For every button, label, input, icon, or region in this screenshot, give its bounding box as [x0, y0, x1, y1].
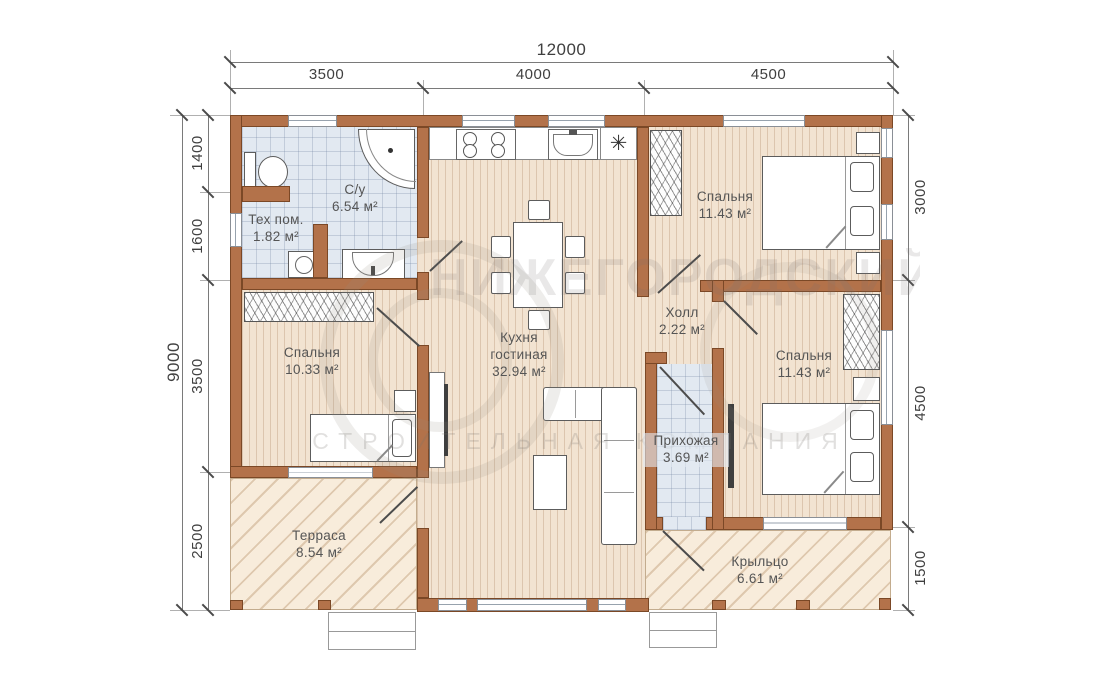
tv-cabinet-living	[429, 372, 445, 468]
coffee-table	[533, 455, 567, 510]
label-bedroom-right-area: 11.43 м²	[762, 365, 846, 382]
ext-right-bottom	[893, 610, 915, 611]
dim-top-seg-3500: 3500	[230, 66, 423, 83]
window-bedroom2-right	[881, 330, 893, 425]
wall-bath-kitchen	[417, 127, 429, 238]
label-su: С/у 6.54 м²	[310, 182, 400, 216]
wall-hallway-stub	[645, 352, 667, 364]
bath-sink-tap	[371, 266, 375, 275]
terrace-post-mid	[318, 600, 331, 610]
label-hall-name: Холл	[640, 305, 724, 322]
terrace-post-left	[230, 600, 243, 610]
dim-top-total: 12000	[230, 40, 893, 60]
label-su-name: С/у	[310, 182, 400, 199]
dim-right-seg-4500: 4500	[912, 373, 928, 433]
dim-line-top-segments	[230, 88, 893, 89]
label-kitchen-area: 32.94 м²	[473, 364, 565, 381]
bed-single-pillow	[392, 419, 412, 457]
label-bedroom-right: Спальня 11.43 м²	[762, 348, 846, 382]
kitchen-sink-tap	[569, 130, 577, 135]
kitchen-sink-basin	[553, 134, 593, 156]
label-hall-area: 2.22 м²	[640, 322, 724, 339]
dim-right-seg-1500: 1500	[912, 538, 928, 598]
bed-right-pillow-1	[850, 410, 874, 440]
nightstand-top-2	[856, 252, 880, 274]
label-bedroom-top: Спальня 11.43 м²	[683, 189, 767, 223]
window-bedroom2-bottom	[763, 517, 847, 530]
label-bedroom-top-area: 11.43 м²	[683, 206, 767, 223]
dim-top-seg-4000: 4000	[423, 66, 644, 83]
dim-left-seg-1400: 1400	[189, 123, 205, 183]
label-bedroom-left-name: Спальня	[268, 345, 356, 362]
label-kitchen-name: Кухня	[473, 330, 565, 347]
terrace-step-line	[329, 631, 415, 632]
window-bedroomleft-bottom	[288, 467, 373, 478]
window-bedroom1-right-2	[881, 204, 893, 240]
wall-nub-su-door	[417, 272, 429, 300]
fridge-icon: ✳	[610, 132, 628, 155]
dim-line-right-segments	[908, 115, 909, 610]
entrance-threshold	[663, 517, 706, 530]
window-living-bottom-3	[598, 599, 626, 611]
label-teh-name: Тех пом.	[238, 212, 314, 229]
chair-top	[528, 200, 550, 220]
label-porch-name: Крыльцо	[715, 554, 805, 571]
stove-burner-3	[463, 144, 477, 158]
ext-left-3500	[200, 472, 230, 473]
label-su-area: 6.54 м²	[310, 199, 400, 216]
window-bedroom1-top	[723, 115, 805, 127]
ext-right-3000	[893, 280, 915, 281]
wall-terrace-living	[417, 528, 429, 598]
label-terrace-name: Терраса	[274, 528, 364, 545]
ext-left-bottom	[170, 610, 230, 611]
label-porch-area: 6.61 м²	[715, 571, 805, 588]
stove-burner-4	[491, 144, 505, 158]
nightstand-bedroom-left	[394, 390, 416, 412]
label-hallway-area: 3.69 м²	[643, 450, 729, 467]
chair-right-1	[565, 236, 585, 258]
wall-left	[230, 115, 242, 478]
porch-post-left	[712, 600, 726, 610]
dim-left-total: 9000	[164, 332, 180, 392]
tv-screen-living	[444, 384, 448, 456]
wall-bedroom2-nub	[712, 280, 724, 302]
ext-right-top	[893, 115, 915, 116]
toilet-bowl	[258, 156, 288, 188]
label-bedroom-right-name: Спальня	[762, 348, 846, 365]
wardrobe-bedroom-left	[244, 292, 374, 322]
dim-right-seg-3000: 3000	[912, 167, 928, 227]
wall-bath-bottom	[242, 278, 417, 290]
fridge: ✳	[600, 127, 637, 160]
porch-step-line	[650, 630, 716, 631]
dim-line-left-segments	[208, 115, 209, 610]
chair-right-2	[565, 272, 585, 294]
label-teh: Тех пом. 1.82 м²	[238, 212, 314, 246]
porch-post-corner	[879, 598, 891, 610]
label-terrace: Терраса 8.54 м²	[274, 528, 364, 562]
shower-head-dot	[388, 148, 393, 153]
wall-right	[881, 115, 893, 530]
ext-left-top	[170, 115, 230, 116]
bed-top-divider	[845, 157, 846, 249]
label-porch: Крыльцо 6.61 м²	[715, 554, 805, 588]
wall-kitchen-bedroom1	[637, 127, 649, 297]
wall-bedroom1-bedroom2	[700, 280, 881, 292]
nightstand-top-1	[856, 132, 880, 154]
bed-top-pillow-2	[850, 206, 874, 236]
chair-left-1	[491, 236, 511, 258]
label-hallway-name: Прихожая	[643, 433, 729, 450]
ext-right-4500	[893, 527, 915, 528]
porch-post-mid	[796, 600, 810, 610]
wardrobe-bedroom-top	[650, 130, 682, 216]
label-teh-area: 1.82 м²	[238, 229, 314, 246]
bed-single-divider	[388, 415, 389, 461]
label-kitchen-name2: гостиная	[473, 347, 565, 364]
dim-line-top-total	[230, 62, 893, 63]
dim-top-seg-4500: 4500	[644, 66, 893, 83]
wall-teh-stub-h	[242, 186, 290, 202]
label-hall: Холл 2.22 м²	[640, 305, 724, 339]
floor-plan-canvas: ✳ С/у 6.54 м² Тех пом. 1.82 м²	[0, 0, 1120, 700]
bed-top-pillow-1	[850, 162, 874, 192]
label-bedroom-top-name: Спальня	[683, 189, 767, 206]
dim-left-seg-2500: 2500	[189, 511, 205, 571]
label-terrace-area: 8.54 м²	[274, 545, 364, 562]
dim-left-seg-3500: 3500	[189, 346, 205, 406]
dining-table	[513, 222, 563, 308]
window-bathroom-top	[288, 115, 337, 127]
chair-left-2	[491, 272, 511, 294]
label-bedroom-left: Спальня 10.33 м²	[268, 345, 356, 379]
sofa-seam-3	[604, 492, 634, 493]
bed-right-divider	[845, 404, 846, 494]
washer-drum	[295, 256, 313, 274]
terrace-steps	[328, 612, 416, 650]
window-kitchen-top-1	[462, 115, 515, 127]
toilet-tank	[244, 152, 256, 190]
porch-steps	[649, 612, 717, 648]
bed-right-pillow-2	[850, 452, 874, 482]
sofa-seam-1	[575, 390, 576, 418]
label-bedroom-left-area: 10.33 м²	[268, 362, 356, 379]
chair-bottom	[528, 310, 550, 330]
sofa-seam-2	[604, 440, 634, 441]
sofa-vertical	[601, 387, 637, 545]
wardrobe-bedroom-right	[843, 294, 880, 370]
nightstand-right-1	[853, 377, 880, 401]
window-living-bottom-1	[438, 599, 467, 611]
wall-bedroomleft-living	[417, 345, 429, 478]
window-kitchen-top-2	[548, 115, 605, 127]
window-living-bottom-2	[477, 599, 587, 611]
window-bedroom1-right-1	[881, 128, 893, 158]
dim-left-seg-1600: 1600	[189, 206, 205, 266]
label-kitchen: Кухня гостиная 32.94 м²	[473, 330, 565, 381]
label-hallway: Прихожая 3.69 м²	[643, 433, 729, 467]
wall-teh-stub-v	[313, 224, 328, 278]
